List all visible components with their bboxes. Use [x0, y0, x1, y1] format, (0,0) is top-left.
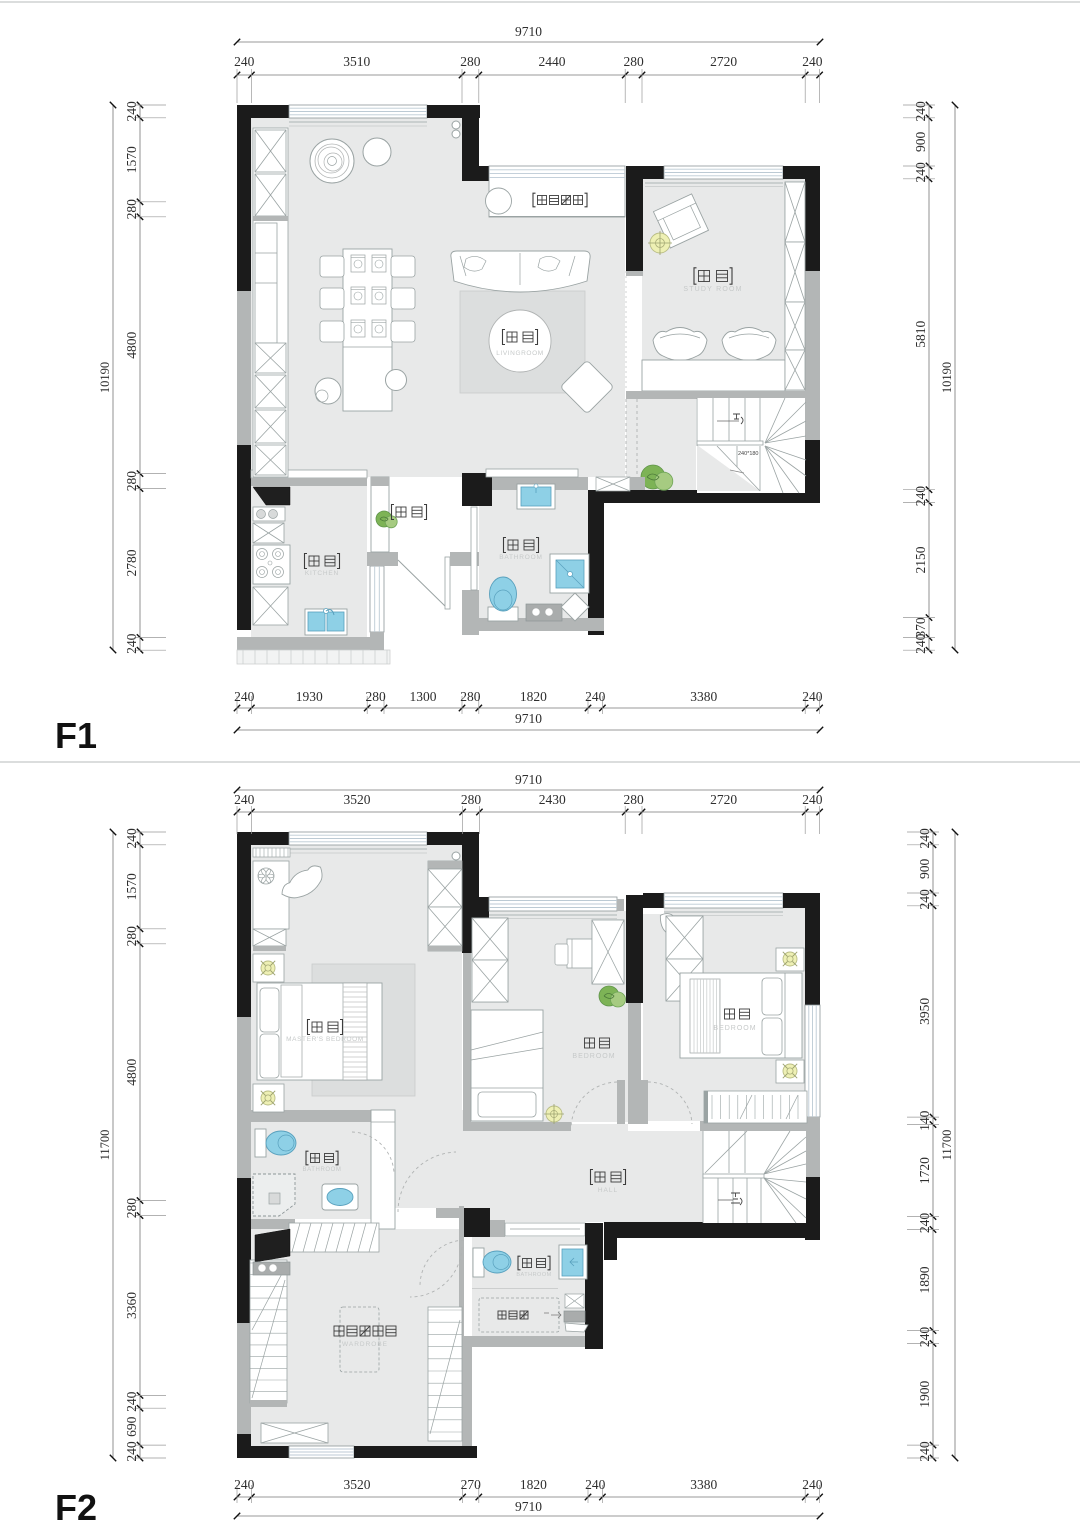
svg-text:240: 240 [124, 101, 139, 122]
svg-text:2150: 2150 [913, 546, 928, 573]
svg-text:240: 240 [802, 792, 823, 807]
svg-text:240: 240 [917, 889, 932, 910]
svg-text:11700: 11700 [98, 1130, 112, 1161]
svg-text:STUDY ROOM: STUDY ROOM [683, 286, 742, 293]
svg-text:1570: 1570 [124, 873, 139, 900]
svg-text:240: 240 [234, 1477, 255, 1492]
svg-text:240: 240 [917, 1441, 932, 1462]
svg-text:280: 280 [124, 199, 139, 220]
svg-text:1820: 1820 [520, 689, 547, 704]
svg-text:280: 280 [460, 54, 481, 69]
svg-text:1900: 1900 [917, 1380, 932, 1407]
svg-text:900: 900 [917, 859, 932, 880]
svg-text:BATHROOM: BATHROOM [499, 554, 542, 561]
svg-text:3510: 3510 [343, 54, 370, 69]
svg-text:KITCHEN: KITCHEN [305, 570, 339, 577]
svg-text:280: 280 [124, 471, 139, 492]
svg-text:1930: 1930 [296, 689, 323, 704]
svg-text:280: 280 [124, 1198, 139, 1219]
svg-text:240: 240 [917, 1213, 932, 1234]
svg-text:240: 240 [802, 689, 823, 704]
svg-text:280: 280 [365, 689, 386, 704]
svg-text:240: 240 [124, 633, 139, 654]
svg-text:140: 140 [917, 1110, 932, 1131]
svg-text:BEDROOM: BEDROOM [713, 1025, 756, 1032]
svg-text:BATHROOM: BATHROOM [516, 1272, 551, 1278]
svg-text:BATHROOM: BATHROOM [302, 1167, 341, 1173]
svg-text:240: 240 [585, 1477, 606, 1492]
svg-text:9710: 9710 [515, 24, 542, 39]
svg-text:1570: 1570 [124, 146, 139, 173]
svg-text:240: 240 [913, 101, 928, 122]
svg-text:240: 240 [234, 54, 255, 69]
svg-text:240: 240 [802, 54, 823, 69]
svg-text:1890: 1890 [917, 1266, 932, 1293]
svg-text:280: 280 [623, 54, 644, 69]
svg-text:F1: F1 [55, 715, 97, 756]
svg-text:3520: 3520 [344, 792, 371, 807]
svg-text:BEDROOM: BEDROOM [572, 1053, 615, 1060]
svg-text:3360: 3360 [124, 1292, 139, 1319]
svg-text:2430: 2430 [539, 792, 566, 807]
svg-text:900: 900 [913, 132, 928, 153]
svg-text:280: 280 [623, 792, 644, 807]
svg-text:F2: F2 [55, 1487, 97, 1527]
svg-text:280: 280 [460, 689, 481, 704]
svg-text:240: 240 [913, 633, 928, 654]
svg-text:2780: 2780 [124, 549, 139, 576]
svg-text:240: 240 [917, 1327, 932, 1348]
svg-text:9710: 9710 [515, 1499, 542, 1514]
svg-text:HALL: HALL [598, 1187, 618, 1194]
svg-text:240: 240 [913, 486, 928, 507]
svg-text:280: 280 [124, 926, 139, 947]
svg-text:3950: 3950 [917, 998, 932, 1025]
svg-text:690: 690 [124, 1416, 139, 1437]
svg-text:9710: 9710 [515, 711, 542, 726]
svg-text:240: 240 [913, 162, 928, 183]
svg-text:280: 280 [461, 792, 482, 807]
svg-text:240: 240 [124, 828, 139, 849]
svg-text:240: 240 [585, 689, 606, 704]
svg-text:1820: 1820 [520, 1477, 547, 1492]
svg-text:3380: 3380 [690, 1477, 717, 1492]
svg-text:4800: 4800 [124, 1058, 139, 1085]
svg-text:240: 240 [124, 1391, 139, 1412]
svg-text:5810: 5810 [913, 320, 928, 347]
svg-text:240: 240 [917, 828, 932, 849]
svg-text:240: 240 [124, 1441, 139, 1462]
svg-text:LIVINGROOM: LIVINGROOM [496, 350, 544, 357]
svg-text:9710: 9710 [515, 772, 542, 787]
svg-text:240: 240 [802, 1477, 823, 1492]
svg-text:240: 240 [234, 689, 255, 704]
svg-text:240*180: 240*180 [738, 451, 759, 457]
svg-text:270: 270 [461, 1477, 482, 1492]
svg-text:1720: 1720 [917, 1157, 932, 1184]
svg-text:2720: 2720 [710, 54, 737, 69]
svg-text:1300: 1300 [410, 689, 437, 704]
svg-text:3520: 3520 [344, 1477, 371, 1492]
svg-text:2720: 2720 [710, 792, 737, 807]
svg-text:3380: 3380 [690, 689, 717, 704]
svg-text:10190: 10190 [98, 362, 112, 393]
svg-text:240: 240 [234, 792, 255, 807]
svg-text:11700: 11700 [940, 1130, 954, 1161]
svg-text:WARDROBE: WARDROBE [342, 1341, 388, 1348]
svg-text:4800: 4800 [124, 331, 139, 358]
svg-text:10190: 10190 [940, 362, 954, 393]
svg-text:2440: 2440 [539, 54, 566, 69]
svg-text:MASTER'S BEDROOM: MASTER'S BEDROOM [286, 1036, 364, 1043]
